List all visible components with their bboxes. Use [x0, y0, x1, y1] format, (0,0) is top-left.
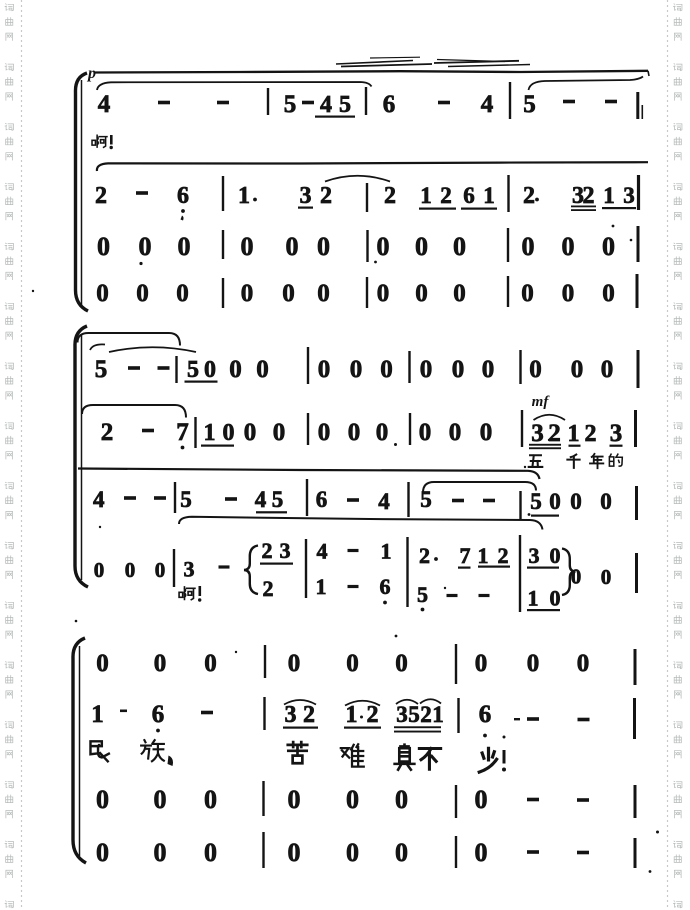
svg-text:0: 0 [395, 838, 408, 867]
svg-text:0: 0 [350, 356, 363, 383]
svg-text:2: 2 [583, 183, 595, 209]
svg-text:2: 2 [523, 183, 535, 209]
svg-text:2: 2 [585, 421, 597, 447]
svg-text:0: 0 [154, 838, 167, 867]
svg-text:3: 3 [610, 420, 623, 447]
svg-text:0: 0 [204, 357, 216, 383]
svg-text:4: 4 [93, 487, 105, 512]
svg-text:1: 1 [568, 421, 580, 447]
svg-text:0: 0 [97, 232, 110, 261]
svg-text:1: 1 [381, 539, 392, 564]
svg-text:7: 7 [460, 543, 471, 568]
svg-text:1: 1 [528, 586, 539, 611]
svg-text:0: 0 [380, 356, 393, 383]
svg-text:4: 4 [378, 489, 390, 514]
svg-text:1: 1 [346, 702, 358, 728]
svg-text:0: 0 [204, 785, 217, 814]
svg-text:2: 2 [419, 543, 430, 568]
svg-text:0: 0 [96, 838, 109, 867]
svg-text:5: 5 [95, 356, 108, 383]
svg-text:0: 0 [529, 356, 542, 383]
svg-text:0: 0 [96, 785, 109, 814]
svg-text:0: 0 [288, 838, 301, 867]
svg-text:0: 0 [282, 280, 295, 307]
svg-text:0: 0 [223, 420, 235, 446]
svg-text:6: 6 [380, 574, 391, 599]
svg-text:5: 5 [417, 582, 428, 607]
svg-text:0: 0 [376, 419, 389, 446]
svg-text:0: 0 [475, 838, 488, 867]
svg-text:6: 6 [383, 91, 396, 118]
svg-text:0: 0 [480, 419, 493, 446]
svg-text:1: 1 [91, 701, 104, 728]
svg-text:0: 0 [241, 232, 254, 261]
svg-text:0: 0 [449, 419, 462, 446]
svg-text:mf: mf [532, 394, 551, 410]
svg-text:0: 0 [204, 650, 217, 677]
svg-text:2: 2 [95, 183, 107, 209]
svg-text:1: 1 [478, 543, 489, 568]
svg-text:6: 6 [316, 487, 328, 512]
svg-text:3: 3 [280, 538, 291, 563]
svg-text:0: 0 [94, 558, 105, 582]
svg-text:6: 6 [152, 701, 165, 728]
svg-text:1: 1 [483, 183, 495, 208]
svg-text:p: p [86, 65, 96, 82]
svg-text:0: 0 [453, 280, 466, 307]
svg-text:5: 5 [284, 91, 297, 118]
svg-text:1: 1 [603, 183, 615, 208]
svg-text:0: 0 [155, 558, 166, 582]
svg-text:0: 0 [522, 232, 535, 261]
svg-text:0: 0 [420, 356, 433, 383]
svg-text:0: 0 [570, 489, 582, 514]
svg-text:5: 5 [523, 91, 536, 118]
svg-text:3: 3 [396, 702, 408, 727]
svg-text:6: 6 [177, 183, 189, 209]
svg-text:0: 0 [241, 280, 254, 307]
svg-text:1: 1 [204, 420, 216, 446]
svg-text:4: 4 [481, 91, 494, 118]
svg-text:5: 5 [180, 487, 192, 512]
svg-text:1: 1 [238, 183, 250, 209]
svg-text:0: 0 [377, 232, 390, 261]
svg-text:2: 2 [263, 576, 274, 601]
svg-text:2: 2 [101, 419, 114, 446]
svg-text:0: 0 [204, 838, 217, 867]
svg-text:0: 0 [286, 232, 299, 261]
svg-text:5: 5 [420, 487, 432, 512]
svg-text:0: 0 [602, 280, 615, 307]
svg-text:6: 6 [463, 183, 475, 208]
svg-text:3: 3 [184, 557, 195, 582]
svg-text:0: 0 [415, 232, 428, 261]
svg-text:1: 1 [432, 702, 444, 727]
svg-text:3: 3 [529, 543, 540, 568]
svg-text:0: 0 [482, 356, 495, 383]
svg-text:0: 0 [577, 650, 590, 677]
svg-text:0: 0 [317, 280, 330, 307]
svg-text:0: 0 [125, 558, 136, 582]
svg-text:2: 2 [303, 702, 315, 728]
svg-text:4: 4 [255, 487, 267, 512]
svg-text:0: 0 [415, 280, 428, 307]
svg-text:0: 0 [562, 280, 575, 307]
svg-text:0: 0 [229, 356, 242, 383]
svg-text:5: 5 [530, 489, 542, 514]
svg-text:0: 0 [521, 280, 534, 307]
svg-text:2: 2 [367, 702, 379, 728]
svg-text:5: 5 [408, 702, 420, 727]
svg-text:0: 0 [317, 232, 330, 261]
svg-text:5: 5 [272, 487, 284, 512]
svg-text:1: 1 [316, 574, 327, 599]
svg-text:2: 2 [548, 420, 561, 447]
svg-text:0: 0 [602, 232, 615, 261]
svg-text:7: 7 [176, 419, 189, 446]
svg-text:4: 4 [317, 539, 328, 564]
svg-text:5: 5 [187, 357, 199, 383]
svg-text:0: 0 [600, 489, 612, 514]
svg-text:0: 0 [139, 232, 152, 261]
svg-text:0: 0 [178, 232, 191, 261]
svg-text:0: 0 [527, 650, 540, 677]
svg-text:0: 0 [176, 280, 189, 307]
svg-text:0: 0 [419, 419, 432, 446]
svg-text:0: 0 [154, 785, 167, 814]
svg-text:0: 0 [550, 543, 561, 568]
svg-text:2: 2 [498, 543, 509, 568]
svg-text:0: 0 [288, 785, 301, 814]
svg-text:0: 0 [256, 356, 269, 383]
svg-text:3: 3 [300, 183, 312, 209]
svg-text:0: 0 [571, 565, 582, 589]
svg-text:0: 0 [154, 650, 167, 677]
svg-text:0: 0 [348, 419, 361, 446]
svg-text:0: 0 [377, 280, 390, 307]
svg-text:0: 0 [475, 650, 488, 677]
svg-text:0: 0 [452, 356, 465, 383]
svg-text:0: 0 [475, 785, 488, 814]
svg-text:0: 0 [96, 650, 109, 677]
svg-text:2: 2 [262, 538, 273, 563]
svg-text:0: 0 [346, 650, 359, 677]
svg-text:2: 2 [384, 183, 396, 209]
svg-text:0: 0 [395, 785, 408, 814]
svg-text:2: 2 [420, 702, 432, 727]
svg-text:0: 0 [346, 838, 359, 867]
svg-text:0: 0 [273, 419, 286, 446]
svg-text:0: 0 [601, 356, 614, 383]
svg-text:0: 0 [571, 356, 584, 383]
svg-text:3: 3 [623, 183, 635, 208]
svg-text:0: 0 [318, 356, 331, 383]
svg-text:6: 6 [479, 701, 492, 728]
svg-text:0: 0 [562, 232, 575, 261]
svg-text:0: 0 [318, 419, 331, 446]
svg-text:0: 0 [395, 650, 408, 677]
svg-text:5: 5 [339, 92, 351, 118]
svg-text:0: 0 [346, 785, 359, 814]
svg-text:0: 0 [549, 489, 561, 514]
svg-text:0: 0 [288, 650, 301, 677]
svg-text:2: 2 [320, 183, 332, 209]
svg-text:0: 0 [601, 565, 612, 589]
svg-text:4: 4 [320, 92, 332, 118]
svg-text:0: 0 [453, 232, 466, 261]
svg-text:0: 0 [136, 280, 149, 307]
svg-text:0: 0 [96, 280, 109, 307]
svg-text:0: 0 [550, 586, 561, 611]
svg-text:2: 2 [440, 183, 452, 208]
svg-text:3: 3 [531, 420, 544, 447]
svg-text:1: 1 [420, 183, 432, 208]
svg-text:3: 3 [285, 702, 297, 728]
svg-text:0: 0 [244, 419, 257, 446]
svg-text:4: 4 [98, 91, 111, 118]
